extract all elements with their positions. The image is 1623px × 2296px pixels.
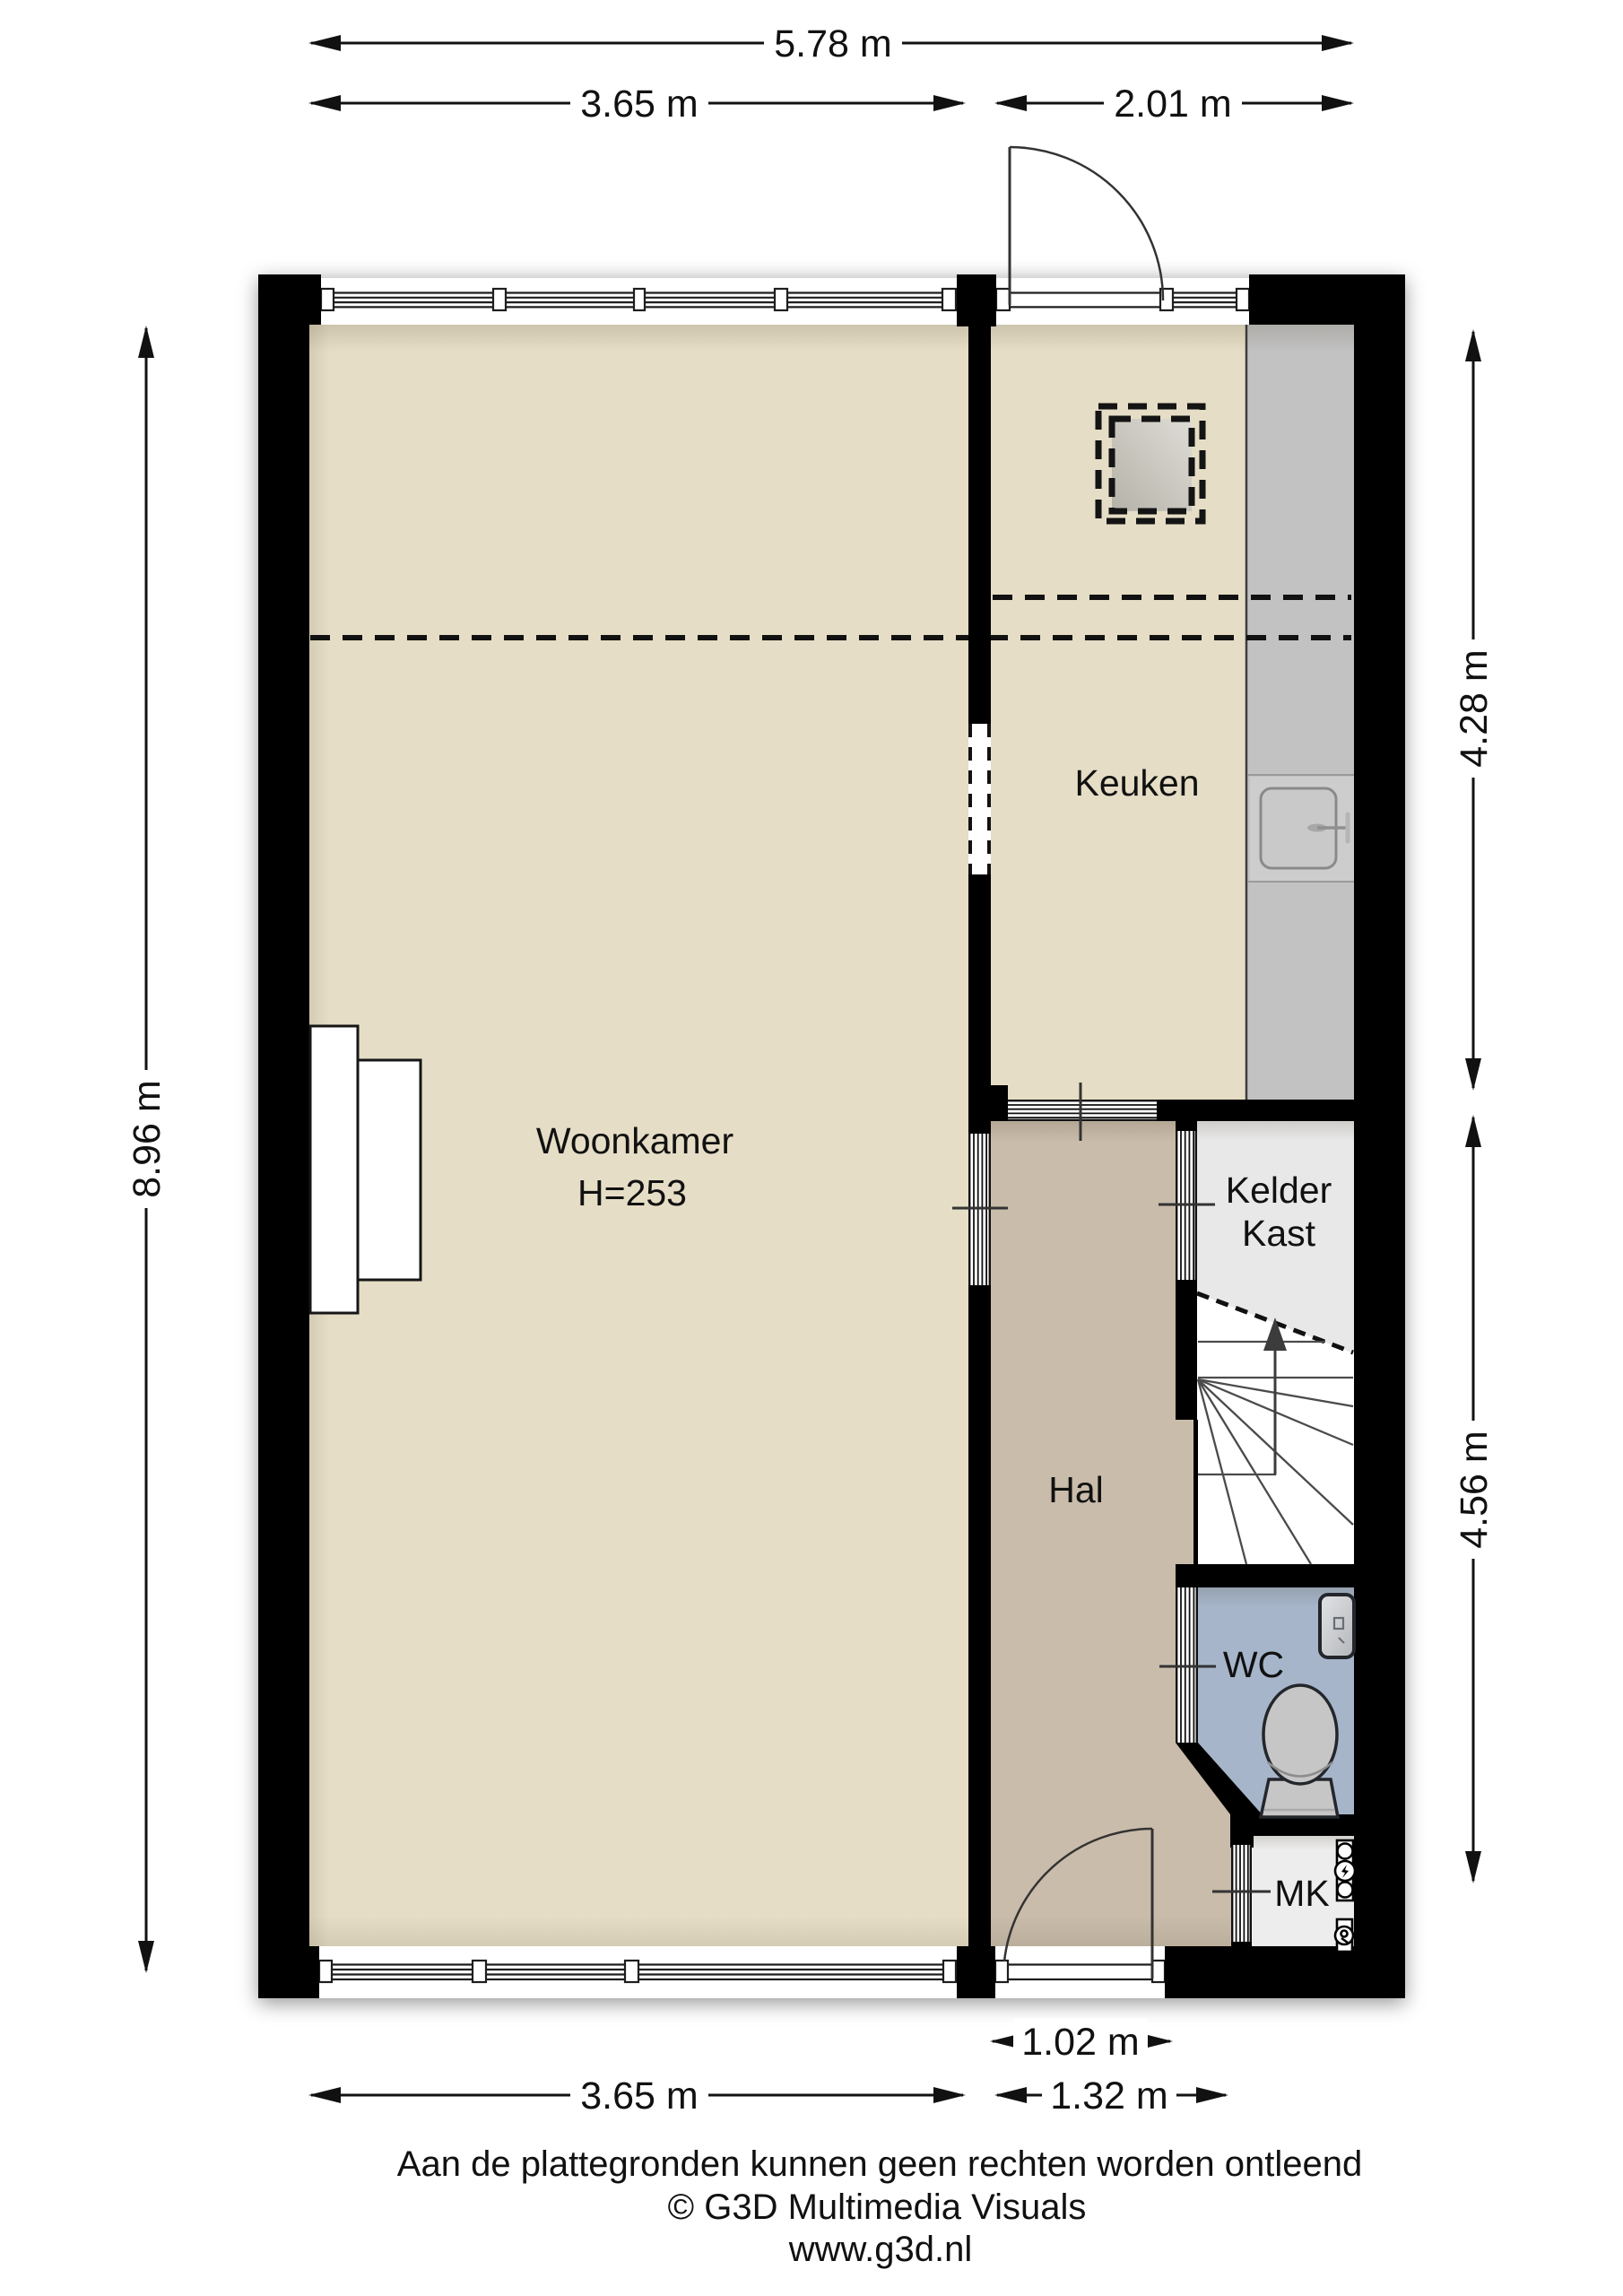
svg-text:Kelder: Kelder bbox=[1226, 1170, 1332, 1211]
svg-text:WC: WC bbox=[1223, 1644, 1284, 1685]
svg-text:© G3D Multimedia Visuals: © G3D Multimedia Visuals bbox=[668, 2187, 1087, 2227]
svg-text:3.65 m: 3.65 m bbox=[580, 83, 698, 126]
svg-text:5.78 m: 5.78 m bbox=[774, 22, 891, 65]
svg-text:Woonkamer: Woonkamer bbox=[536, 1120, 733, 1161]
svg-text:MK: MK bbox=[1274, 1873, 1330, 1914]
svg-text:H=253: H=253 bbox=[577, 1172, 687, 1213]
svg-text:www.g3d.nl: www.g3d.nl bbox=[788, 2230, 973, 2269]
svg-text:3.65 m: 3.65 m bbox=[580, 2074, 698, 2118]
svg-text:1.32 m: 1.32 m bbox=[1050, 2074, 1167, 2118]
svg-text:Hal: Hal bbox=[1048, 1469, 1104, 1510]
svg-text:2.01 m: 2.01 m bbox=[1114, 83, 1231, 126]
svg-text:1.02 m: 1.02 m bbox=[1021, 2021, 1139, 2064]
svg-text:8.96 m: 8.96 m bbox=[126, 1080, 169, 1197]
svg-text:4.56 m: 4.56 m bbox=[1453, 1431, 1496, 1548]
svg-text:Kast: Kast bbox=[1242, 1213, 1316, 1254]
svg-text:Aan de plattegronden kunnen ge: Aan de plattegronden kunnen geen rechten… bbox=[397, 2144, 1362, 2184]
svg-text:4.28 m: 4.28 m bbox=[1453, 649, 1496, 767]
svg-text:Keuken: Keuken bbox=[1074, 762, 1199, 804]
